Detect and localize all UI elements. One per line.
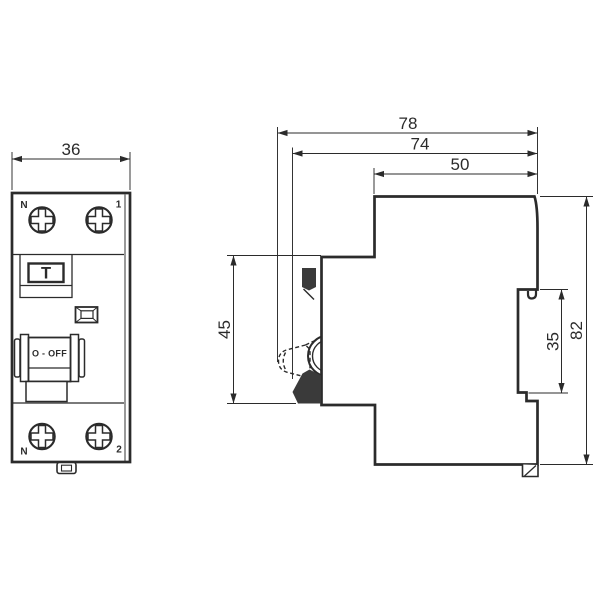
terminal-label-2: 2 [116, 445, 122, 456]
dimension-depth-50: 50 [374, 155, 538, 174]
dimension-width-36: 36 [12, 140, 130, 190]
drawing-canvas: 36 N 1 T [0, 0, 600, 600]
terminal-screw-icon [86, 207, 111, 232]
switch-cap-right [79, 339, 85, 377]
switch-rocker [29, 338, 71, 382]
terminal-screw-icon [29, 207, 54, 232]
front-view: 36 N 1 T [12, 140, 130, 474]
switch-cap-left [15, 339, 21, 377]
switch-foot [26, 382, 67, 402]
dim-36-label: 36 [62, 140, 81, 159]
dimension-front-height-45: 45 [215, 256, 234, 404]
terminal-label-n-top: N [20, 200, 27, 211]
terminal-screw-icon [29, 424, 54, 449]
dim-82-label: 82 [567, 321, 586, 340]
knob-tip-line [283, 353, 285, 370]
indicator-inner-frame [81, 311, 93, 319]
side-view: 78 74 50 [215, 114, 593, 477]
terminal-label-n-bottom: N [20, 447, 27, 458]
terminal-label-1: 1 [116, 200, 122, 211]
terminal-screw-icon [86, 424, 111, 449]
dim-35-label: 35 [544, 332, 563, 351]
technical-drawing: 36 N 1 T [0, 0, 600, 600]
dimension-height-82: 82 [567, 197, 587, 465]
test-button-label: T [41, 265, 51, 283]
side-rail-clip [523, 465, 539, 477]
dimension-rail-recess-35: 35 [544, 290, 563, 394]
dim-45-label: 45 [215, 320, 234, 339]
dim-50-label: 50 [451, 155, 470, 174]
indicator-window [76, 307, 98, 323]
dimension-depth-78: 78 [278, 114, 538, 133]
front-rail-clip [57, 463, 76, 474]
terminal-block-side [302, 268, 316, 291]
clip-slider [62, 465, 72, 471]
side-body-outline [322, 197, 538, 465]
dim-78-label: 78 [399, 114, 418, 133]
switch-post-left [21, 335, 29, 382]
dimension-depth-74: 74 [293, 135, 538, 154]
terminal-chamfer-line [304, 289, 315, 300]
dim-74-label: 74 [411, 135, 430, 154]
front-body-outline [12, 193, 130, 462]
switch-state-label: O - OFF [32, 349, 67, 359]
switch-post-right [71, 335, 79, 382]
